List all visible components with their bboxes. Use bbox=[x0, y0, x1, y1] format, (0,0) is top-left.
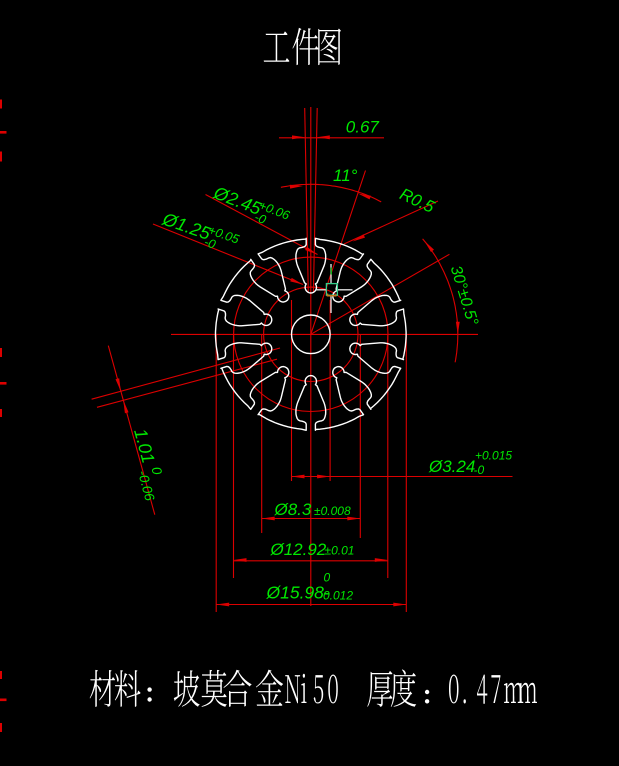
svg-text:Ø15.98-: Ø15.98- bbox=[266, 583, 330, 603]
svg-text:±0.01: ±0.01 bbox=[325, 544, 355, 558]
svg-text:Ø3.24: Ø3.24 bbox=[428, 457, 475, 476]
svg-text:Ø8.3: Ø8.3 bbox=[274, 500, 312, 519]
svg-text:0.67: 0.67 bbox=[346, 118, 380, 137]
svg-text:Ø12.92: Ø12.92 bbox=[270, 540, 327, 559]
svg-text:±0.008: ±0.008 bbox=[314, 504, 351, 518]
svg-text:+0.015: +0.015 bbox=[475, 449, 512, 463]
svg-text:0.012: 0.012 bbox=[323, 589, 353, 603]
svg-text:0: 0 bbox=[324, 571, 331, 585]
svg-text:-0: -0 bbox=[474, 463, 485, 477]
svg-text:11°: 11° bbox=[333, 166, 358, 185]
